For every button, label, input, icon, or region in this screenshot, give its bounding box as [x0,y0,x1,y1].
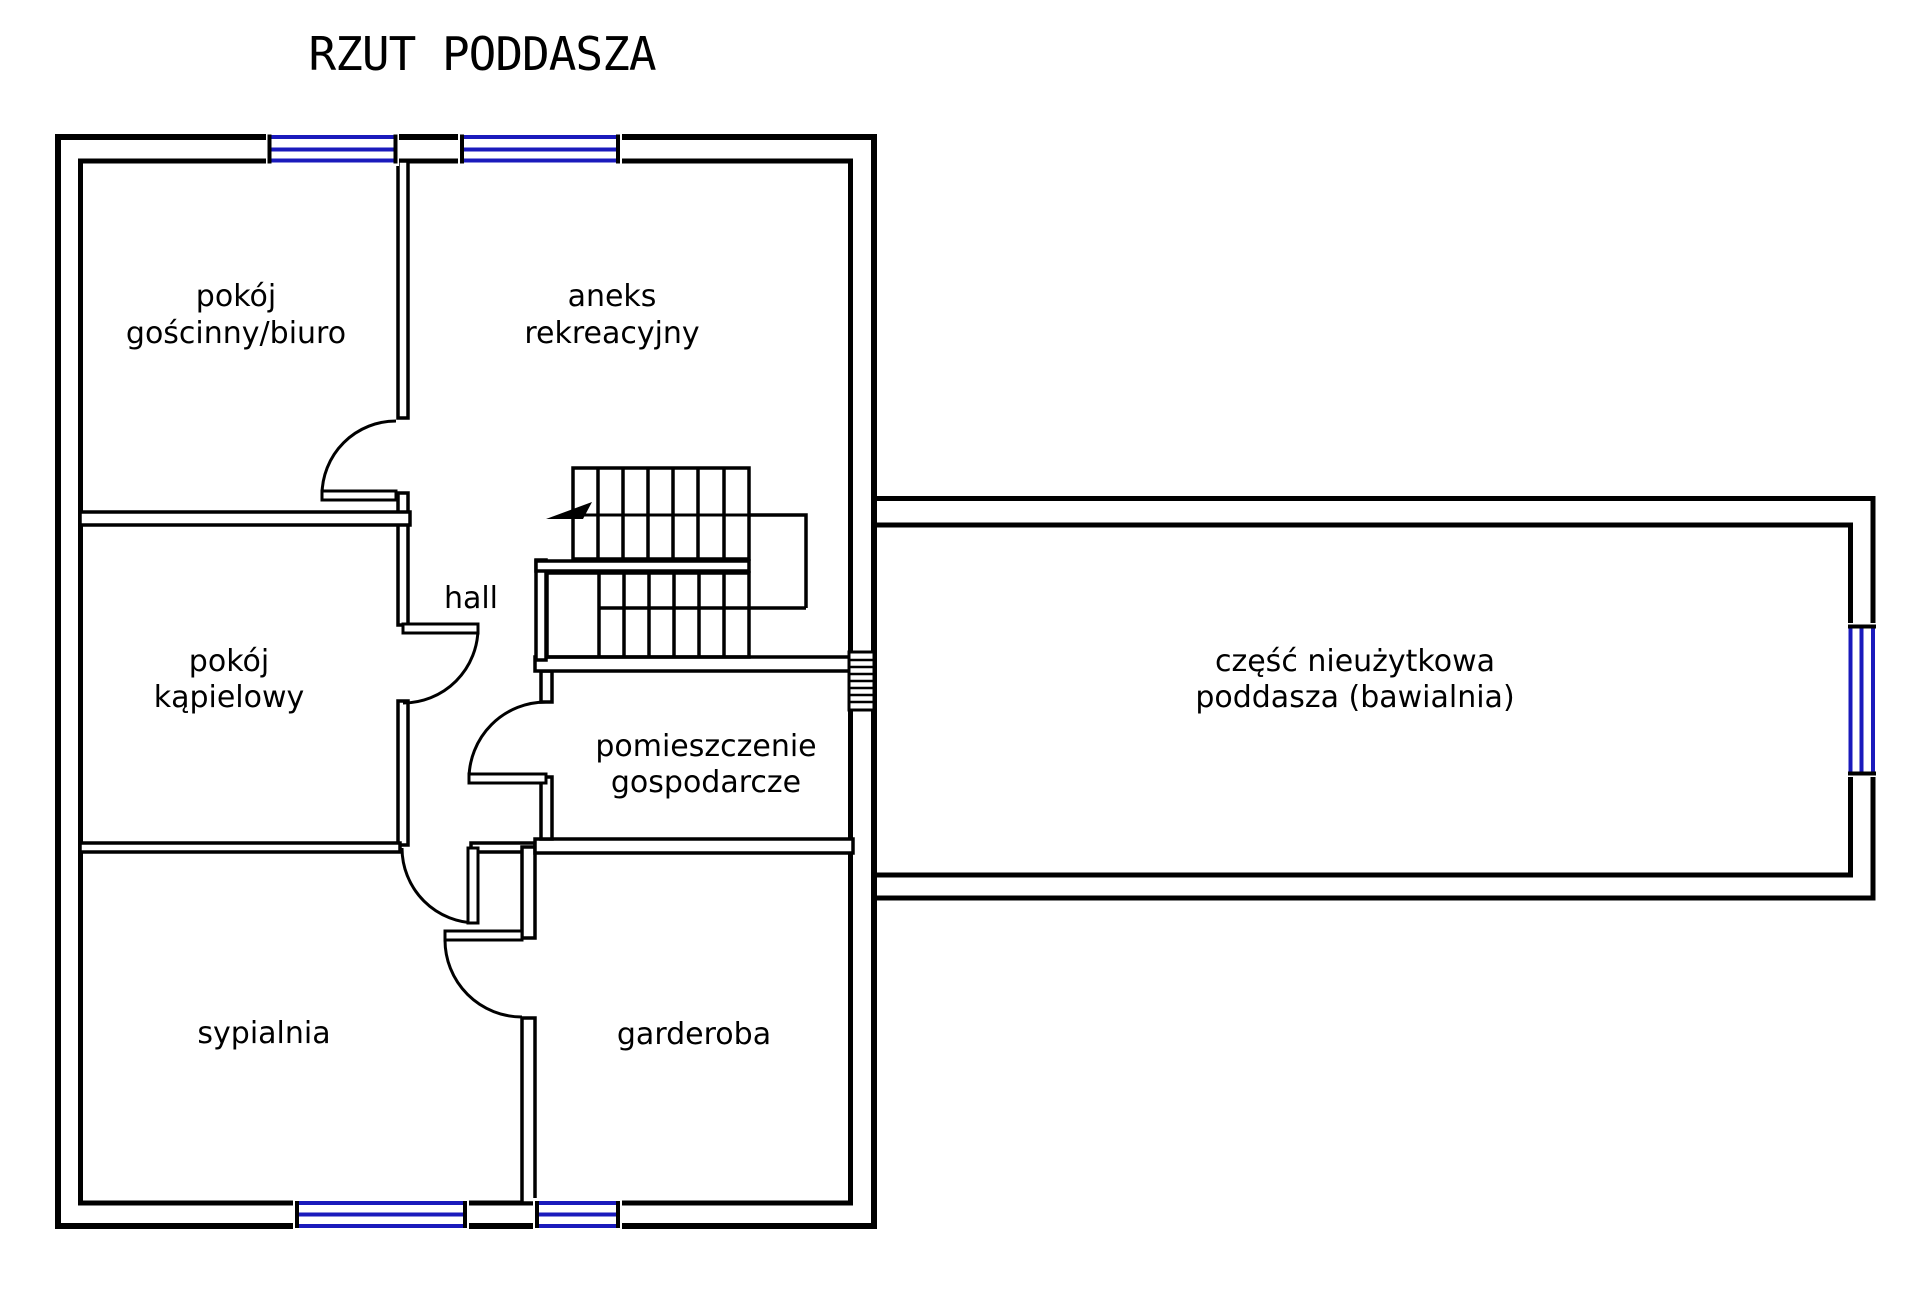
wall-stair-left [536,560,546,660]
floor-plan-drawing: RZUT PODDASZA pokój gościnny/biuro aneks… [0,0,1920,1306]
label-bathroom-line2: kąpielowy [154,680,305,715]
wall-hall-left-low [398,701,408,845]
door-utility-room [469,702,546,783]
wall-utility-wardrobe [535,839,853,853]
door-guest-room [322,421,396,500]
label-hall: hall [444,581,498,616]
wall-stair-bottom [535,657,853,671]
label-guest-room-line1: pokój [196,279,276,314]
window-wardrobe-bottom [533,1198,622,1232]
window-bedroom-bottom [293,1198,469,1232]
windows [266,132,1878,1232]
label-attic-line2: poddasza (bawialnia) [1195,680,1514,715]
wall-bath-bedroom [80,843,400,852]
label-guest-room-line2: gościnny/biuro [126,316,346,351]
door-wardrobe [445,931,522,1017]
stair-lower-flight [547,573,749,657]
window-annex-top [458,132,622,166]
window-guest-top [266,132,399,166]
label-annex-line2: rekreacyjny [524,316,699,351]
door-bathroom [403,624,478,703]
label-utility-line2: gospodarcze [611,765,801,800]
wall-bedroom-wardrobe-top [522,847,535,938]
label-annex-line1: aneks [568,279,657,314]
stair-direction-arrow [546,502,806,519]
label-utility-line1: pomieszczenie [595,729,816,764]
label-bathroom-line1: pokój [189,644,269,679]
label-wardrobe: garderoba [617,1017,771,1052]
label-bedroom: sypialnia [197,1016,330,1051]
window-attic-right [1846,623,1878,777]
vent-hatch [849,652,874,710]
door-bedroom [402,848,478,923]
wall-utility-left-top [541,671,552,702]
wall-guest-bath [80,512,410,525]
wall-bedroom-wardrobe-bottom [522,1018,535,1203]
wall-stair-mid [536,561,749,571]
page-title: RZUT PODDASZA [308,27,655,81]
floor-plan-page: RZUT PODDASZA pokój gościnny/biuro aneks… [0,0,1920,1306]
wall-guest-annex [398,161,408,418]
wall-utility-left-bottom [541,777,552,839]
label-attic-line1: część nieużytkowa [1215,644,1495,679]
